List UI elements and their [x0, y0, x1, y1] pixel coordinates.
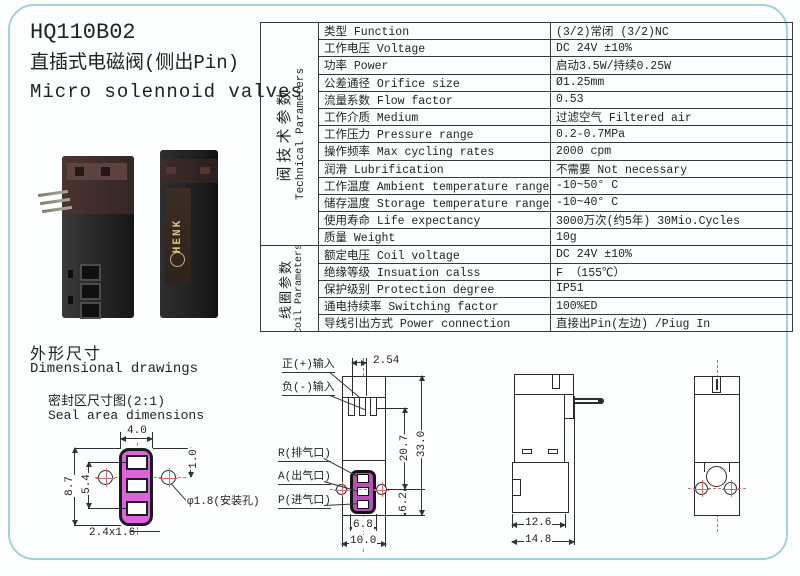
pin-slot — [348, 397, 355, 416]
table-row: 公差通径 Orifice sizeØ1.25mm — [261, 74, 793, 91]
spec-table: 阀技术参数 Technical Parameters 类型 Function (… — [260, 22, 793, 332]
side-step — [564, 394, 574, 419]
seal-port-p — [126, 501, 148, 516]
mount-hole — [68, 296, 73, 304]
body-line — [694, 394, 740, 395]
table-row: 工作压力 Pressure range0.2-0.7MPa — [261, 126, 793, 143]
dimension-line — [121, 438, 152, 439]
param-cell: 质量 Weight — [319, 229, 551, 246]
body-line — [729, 462, 730, 472]
dim-seal-height: 8.7 — [64, 475, 76, 497]
table-row: 绝缘等级 Insuation calssF （155℃） — [261, 263, 793, 280]
extension-line — [74, 525, 121, 526]
param-cell: 功率 Power — [319, 57, 551, 74]
table-row: 工作电压 VoltageDC 24V ±10% — [261, 40, 793, 57]
table-row: 工作介质 Medium过滤空气 Filtered air — [261, 108, 793, 125]
value-cell: DC 24V ±10% — [551, 246, 793, 263]
body-line — [704, 462, 705, 472]
dim-pin-pitch: 2.54 — [372, 355, 400, 367]
group-label-en: Technical Parameters — [295, 68, 307, 200]
group-label-zh: 阀技术参数 — [273, 68, 294, 200]
extension-line — [88, 462, 126, 463]
table-row: 保护级别 Protection degreeIP51 — [261, 280, 793, 297]
mount-hole-left — [98, 470, 113, 485]
group-coil-parameters: 线圈参数 Coil Parameters — [261, 246, 319, 332]
dim-total-height: 33.0 — [416, 430, 428, 458]
back-center-boss — [706, 466, 727, 487]
dim-seal-width: 4.0 — [126, 425, 148, 437]
dim-lower: 6.2 — [398, 491, 410, 513]
table-row: 流量系数 Flow factor0.53 — [261, 91, 793, 108]
table-row: 工作温度 Ambient temperature range-10~50° C — [261, 177, 793, 194]
dim-seal-port: 2.4x1.6 — [88, 527, 136, 539]
value-cell: (3/2)常闭 (3/2)NC — [551, 23, 793, 40]
param-cell: 流量系数 Flow factor — [319, 91, 551, 108]
dim-seal-hole: φ1.8(安装孔) — [186, 496, 261, 508]
value-cell: 过滤空气 Filtered air — [551, 108, 793, 125]
mount-hole — [68, 270, 73, 278]
label-positive-input: 正(+)输入 — [282, 358, 335, 373]
value-cell: DC 24V ±10% — [551, 40, 793, 57]
table-row: 储存温度 Storage temperature range-10~40° C — [261, 194, 793, 211]
label-port-p: P(进气口) — [278, 494, 331, 509]
dim-side-body: 12.6 — [524, 517, 552, 529]
table-row: 润滑 Lubrification不需要 Not necessary — [261, 160, 793, 177]
value-cell: 0.2-0.7MPa — [551, 126, 793, 143]
table-row: 线圈参数 Coil Parameters 额定电压 Coil voltage D… — [261, 246, 793, 263]
param-cell: 额定电压 Coil voltage — [319, 246, 551, 263]
side-pin-slot — [552, 374, 560, 389]
dim-body-width: 10.0 — [349, 535, 377, 547]
dim-seal-offset: 1.0 — [188, 448, 200, 470]
param-cell: 使用寿命 Life expectancy — [319, 212, 551, 229]
group-label-en: Coil Parameters — [294, 246, 305, 332]
value-cell: 3000万次(约5年) 30Mio.Cycles — [551, 212, 793, 229]
value-cell: 启动3.5W/持续0.25W — [551, 57, 793, 74]
table-row: 使用寿命 Life expectancy3000万次(约5年) 30Mio.Cy… — [261, 212, 793, 229]
group-label-zh: 线圈参数 — [275, 246, 294, 332]
side-top-block — [514, 374, 574, 395]
param-cell: 工作介质 Medium — [319, 108, 551, 125]
value-cell: -10~50° C — [551, 177, 793, 194]
side-pin-tip — [598, 398, 604, 404]
extension-line — [88, 508, 126, 509]
value-cell: 0.53 — [551, 91, 793, 108]
mount-hole-right — [376, 484, 387, 495]
param-cell: 保护级别 Protection degree — [319, 280, 551, 297]
leader-line — [130, 531, 160, 532]
label-port-a: A(出气口) — [278, 470, 331, 485]
dim-side-total: 14.8 — [524, 534, 552, 546]
body-line — [342, 460, 386, 461]
param-cell: 绝缘等级 Insuation calss — [319, 263, 551, 280]
value-cell: 10g — [551, 229, 793, 246]
side-slot — [548, 449, 558, 454]
seal-title-zh: 密封区尺寸图(2:1) — [48, 390, 165, 409]
dim-heading-en: Dimensional drawings — [30, 361, 198, 377]
side-slot — [522, 449, 532, 454]
port-p — [357, 500, 369, 509]
param-cell: 类型 Function — [319, 23, 551, 40]
top-tab — [200, 167, 210, 174]
datasheet-page: HQ110B02 直插式电磁阀(侧出Pin) Micro solennoid v… — [0, 0, 800, 576]
param-cell: 储存温度 Storage temperature range — [319, 194, 551, 211]
port-r — [357, 474, 369, 483]
extension-line — [574, 396, 575, 545]
valve-port — [80, 283, 101, 300]
param-cell: 公差通径 Orifice size — [319, 74, 551, 91]
dimension-line — [352, 362, 366, 363]
cap-slot — [101, 167, 110, 176]
bolt-hole-right — [724, 482, 737, 495]
value-cell: F （155℃） — [551, 263, 793, 280]
group-technical-parameters: 阀技术参数 Technical Parameters — [261, 23, 319, 246]
seal-title-en: Seal area dimensions — [48, 408, 204, 423]
param-cell: 通电持续率 Switching factor — [319, 298, 551, 315]
table-row: 导线引出方式 Power connection直接出Pin(左边) /Piug … — [261, 315, 793, 332]
table-row: 阀技术参数 Technical Parameters 类型 Function (… — [261, 23, 793, 40]
cap-slot — [75, 167, 84, 176]
param-cell: 工作电压 Voltage — [319, 40, 551, 57]
param-cell: 工作温度 Ambient temperature range — [319, 177, 551, 194]
bolt-hole-left — [695, 482, 708, 495]
value-cell: 2000 cpm — [551, 143, 793, 160]
table-row: 通电持续率 Switching factor100%ED — [261, 298, 793, 315]
value-cell: IP51 — [551, 280, 793, 297]
label-negative-input: 负(-)输入 — [282, 381, 335, 396]
value-cell: 不需要 Not necessary — [551, 160, 793, 177]
param-cell: 工作压力 Pressure range — [319, 126, 551, 143]
label-port-r: R(排气口) — [278, 447, 331, 462]
table-row: 操作频率 Max cycling rates2000 cpm — [261, 143, 793, 160]
brand-logo-icon — [170, 252, 185, 267]
dim-port-span: 6.8 — [352, 519, 374, 531]
table-row: 质量 Weight10g — [261, 229, 793, 246]
pin-slot — [370, 397, 377, 416]
param-cell: 导线引出方式 Power connection — [319, 315, 551, 332]
param-cell: 操作频率 Max cycling rates — [319, 143, 551, 160]
back-pin — [716, 379, 718, 390]
seal-port-r — [126, 455, 148, 470]
valve-port — [80, 302, 101, 319]
extension-line — [74, 448, 121, 449]
value-cell: 100%ED — [551, 298, 793, 315]
table-row: 功率 Power启动3.5W/持续0.25W — [261, 57, 793, 74]
side-notch — [512, 479, 521, 496]
valve-port — [80, 264, 101, 281]
body-line — [694, 462, 740, 463]
dim-seal-inner: 5.4 — [81, 473, 93, 495]
value-cell: -10~40° C — [551, 194, 793, 211]
value-cell: 直接出Pin(左边) /Piug In — [551, 315, 793, 332]
valve-cap-strip — [67, 163, 127, 180]
mount-hole-right — [161, 470, 176, 485]
valve-top-band — [160, 159, 218, 183]
param-cell: 润滑 Lubrification — [319, 160, 551, 177]
seal-port-a — [126, 478, 148, 493]
valve-label-plate: HENK — [165, 188, 191, 284]
dim-upper: 20.7 — [399, 434, 411, 462]
value-cell: Ø1.25mm — [551, 74, 793, 91]
top-tab — [166, 167, 176, 174]
